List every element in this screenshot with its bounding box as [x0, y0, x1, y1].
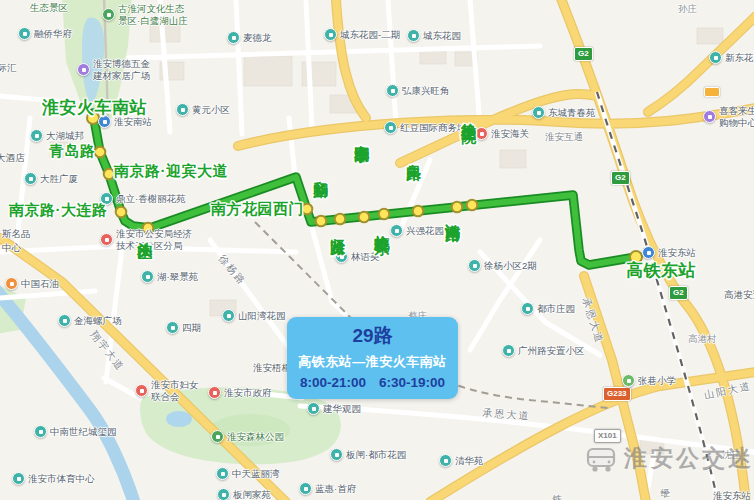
map-text-label: 生态景区	[30, 2, 68, 15]
poi-label: 蓝惠·首府	[299, 482, 356, 495]
gas-poi-icon	[5, 277, 18, 290]
residential-poi-icon	[166, 321, 179, 334]
poi-label: 喜客来生购物中心	[703, 105, 754, 129]
poi-label: 张巷小学	[622, 374, 676, 387]
poi-label: 城东花园	[407, 29, 461, 42]
poi-label: 红豆国际商务城	[384, 121, 467, 134]
poi-label: 古淮河文化生态景区·白鹭湖山庄	[102, 3, 188, 27]
bus-stop-name-label: 南京路·迎宾大道	[114, 162, 228, 181]
bus-stop-name-label: 淮安火车南站	[42, 96, 147, 119]
poi-label: 广州路安置小区	[502, 344, 585, 357]
bus-stop-name-label: 南京路·大连路	[9, 201, 108, 220]
poi-label: 淮安森林公园	[211, 430, 284, 443]
map-text-label: 国际汇	[0, 62, 17, 75]
road-name-label: 徐杨路	[215, 252, 249, 289]
route-endpoints: 高铁东站—淮安火车南站	[295, 353, 450, 371]
highway-badge: G233	[603, 387, 631, 401]
poi-label: 山阳湾花园	[222, 309, 286, 322]
residential-poi-icon	[141, 270, 154, 283]
bus-stop-name-label: 和畅路	[313, 169, 329, 172]
residential-poi-icon	[335, 250, 348, 263]
poi-label: 湖·翠景苑	[141, 270, 198, 283]
residential-poi-icon	[227, 31, 240, 44]
gov-poi-icon	[475, 127, 488, 140]
road-name-label: 承恩大道	[482, 406, 531, 423]
poi-label: 建华观园	[307, 402, 361, 415]
poi-label: 四期	[166, 321, 201, 334]
residential-poi-icon	[439, 454, 452, 467]
residential-poi-icon	[307, 402, 320, 415]
map-text-label: 大酒店	[0, 152, 25, 165]
bus-stop-name-label: 青岛路	[49, 142, 96, 161]
bus-stop-name-label: 白果路	[406, 152, 422, 155]
route-info-card: 29路 高铁东站—淮安火车南站 8:00-21:00 6:30-19:00	[287, 317, 458, 399]
map-text-label: 淮安互通	[545, 131, 583, 144]
poi-label: 淮安市妇女联合会	[135, 379, 199, 403]
residential-poi-icon	[24, 172, 37, 185]
highway-badge: G2	[611, 171, 630, 185]
poi-label: 黄元小区	[176, 103, 230, 116]
residential-poi-icon	[709, 51, 722, 64]
bus-stop-name-label: 拖拉机桥东	[374, 223, 390, 228]
map-text-label: 淮安梧桐	[253, 362, 291, 375]
bus-stop-name-label: 徐杨卫生院	[461, 111, 477, 116]
county-road-badge: X101	[594, 429, 621, 443]
gov-poi-icon	[208, 386, 221, 399]
residential-poi-icon	[217, 488, 230, 500]
bus-stop-name-label: 高铁东站	[626, 259, 696, 282]
map-text-label: 孙庄	[678, 3, 697, 16]
poi-label: 城东花园-二期	[324, 28, 400, 41]
map-viewport[interactable]: 古淮河文化生态景区·白鹭湖山庄融侨华府麦德龙城东花园-二期城东花园淮安博德五金建…	[0, 0, 754, 500]
residential-poi-icon	[34, 425, 47, 438]
map-labels-layer: 古淮河文化生态景区·白鹭湖山庄融侨华府麦德龙城东花园-二期城东花园淮安博德五金建…	[0, 0, 754, 500]
poi-label: 金海螺广场	[58, 314, 122, 327]
poi-label: 大湖城邦	[30, 129, 84, 142]
poi-label: 中天蓝丽湾	[216, 467, 280, 480]
residential-poi-icon	[12, 472, 25, 485]
gov-poi-icon	[100, 233, 113, 246]
park-poi-icon	[211, 430, 224, 443]
route-line-name: 29路	[295, 323, 450, 349]
poi-label: 淮安东站	[642, 246, 696, 259]
route-hours: 8:00-21:00 6:30-19:00	[295, 375, 450, 390]
poi-label: 新东花园	[709, 51, 754, 64]
residential-poi-icon	[222, 309, 235, 322]
poi-label: 斯名品	[0, 227, 31, 240]
poi-label: 麦德龙	[227, 31, 272, 44]
residential-poi-icon	[330, 448, 343, 461]
poi-label: 淮安博德五金建材家居广场	[77, 58, 150, 82]
poi-label: 板闸家苑	[217, 488, 271, 500]
poi-label: 清华苑	[439, 454, 484, 467]
residential-poi-icon	[390, 224, 403, 237]
highway-badge: G2	[574, 47, 593, 61]
bus-stop-name-label: 咏贤路	[330, 226, 346, 229]
watermark: 淮安公交迷	[584, 443, 754, 474]
residential-poi-icon	[216, 467, 229, 480]
transit-poi-icon	[642, 246, 655, 259]
gov-poi-icon	[135, 384, 148, 397]
residential-poi-icon	[384, 121, 397, 134]
residential-poi-icon	[299, 482, 312, 495]
map-text-label: 淮安东站	[713, 490, 751, 500]
bus-stop-name-label: 安澜路小学	[354, 132, 370, 137]
poi-label: 板闸·都市花园	[330, 448, 406, 461]
residential-poi-icon	[386, 84, 399, 97]
residential-poi-icon	[324, 28, 337, 41]
route-hours-right: 6:30-19:00	[379, 375, 445, 390]
bus-stop-name-label: 汕头小区	[137, 230, 153, 234]
poi-label: 东城青春苑	[532, 106, 596, 119]
road-name-label: 山阳大道	[703, 379, 753, 403]
bus-logo-icon	[584, 444, 618, 474]
poi-label: 大胜广厦	[24, 172, 78, 185]
road-name-label: 承恩大道	[579, 296, 607, 346]
school-poi-icon	[622, 374, 635, 387]
poi-label: 徐杨小区2期	[468, 259, 537, 272]
mall-poi-icon	[77, 63, 90, 76]
route-hours-left: 8:00-21:00	[300, 375, 366, 390]
poi-label: 融侨华府	[18, 27, 72, 40]
poi-label: 鼎立·香榭丽花苑	[100, 192, 186, 205]
residential-poi-icon	[468, 259, 481, 272]
residential-poi-icon	[521, 302, 534, 315]
residential-poi-icon	[176, 103, 189, 116]
poi-label: 都市庄园	[521, 302, 575, 315]
residential-poi-icon	[407, 29, 420, 42]
service-area-badge	[704, 87, 720, 97]
road-name-label: 翔宇大道	[87, 328, 128, 374]
bus-stop-name-label: 鸿海南路	[445, 212, 461, 216]
poi-label: 淮安市体育中心	[12, 472, 95, 485]
poi-label: 林语美	[335, 250, 380, 263]
poi-label: 兴强花园	[390, 224, 444, 237]
poi-label: 中国石油	[5, 277, 59, 290]
poi-label: 中南世纪城玺园	[34, 425, 117, 438]
poi-label: 淮安海关	[475, 127, 529, 140]
bus-stop-name-label: 南方花园西门	[211, 200, 304, 219]
map-text-label: 高港村	[688, 333, 717, 346]
mall-poi-icon	[703, 110, 716, 123]
watermark-text: 淮安公交迷	[624, 443, 754, 474]
residential-poi-icon	[30, 129, 43, 142]
highway-badge: G2	[669, 286, 688, 300]
residential-poi-icon	[532, 106, 545, 119]
residential-poi-icon	[18, 27, 31, 40]
park-poi-icon	[102, 8, 115, 21]
poi-label: 淮安市政府	[208, 386, 272, 399]
poi-label: 弘康兴旺角	[386, 84, 450, 97]
map-text-label: 高港安置小区	[724, 289, 754, 302]
residential-poi-icon	[58, 314, 71, 327]
residential-poi-icon	[502, 344, 515, 357]
map-text-label: 中心	[2, 242, 21, 255]
